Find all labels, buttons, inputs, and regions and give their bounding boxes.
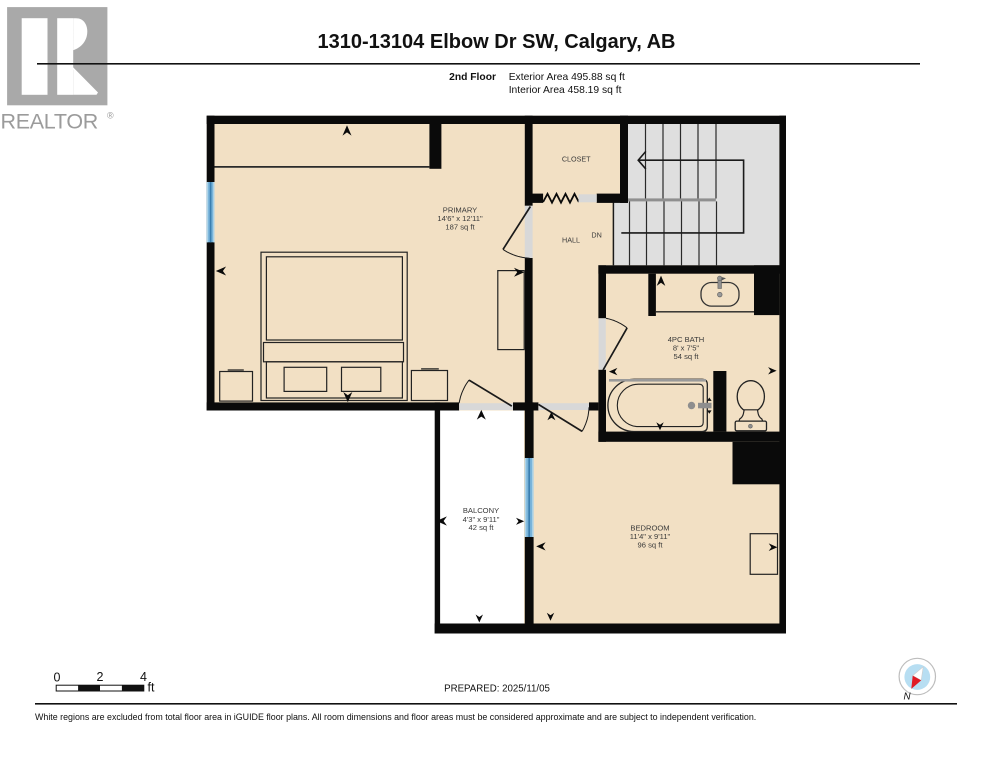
svg-text:0: 0 — [54, 671, 61, 685]
svg-text:42 sq ft: 42 sq ft — [469, 523, 495, 532]
svg-text:ft: ft — [148, 681, 155, 695]
svg-text:187 sq ft: 187 sq ft — [445, 222, 475, 231]
svg-text:2: 2 — [97, 670, 104, 684]
svg-text:White regions are excluded fro: White regions are excluded from total fl… — [35, 712, 756, 722]
svg-text:PREPARED: 2025/11/05: PREPARED: 2025/11/05 — [444, 683, 550, 694]
svg-text:CLOSET: CLOSET — [562, 155, 591, 164]
svg-text:N: N — [903, 691, 911, 702]
svg-text:BALCONY: BALCONY — [463, 506, 499, 515]
svg-text:4: 4 — [140, 670, 147, 684]
svg-text:HALL: HALL — [562, 236, 580, 245]
svg-text:96 sq ft: 96 sq ft — [638, 541, 664, 550]
svg-text:DN: DN — [591, 230, 601, 239]
svg-text:54 sq ft: 54 sq ft — [674, 352, 700, 361]
